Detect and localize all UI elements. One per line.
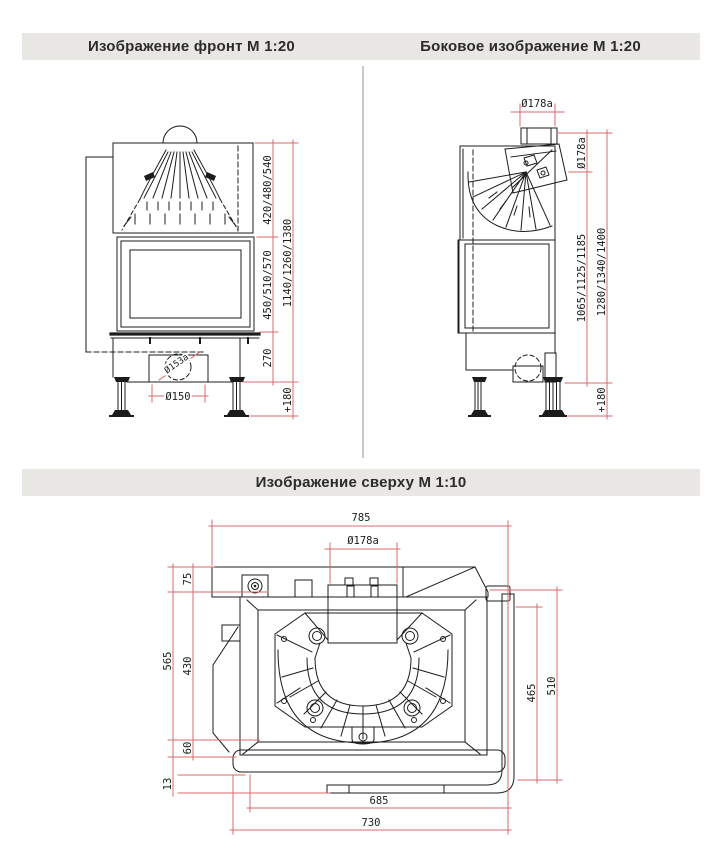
dim-front-glass: 450/510/570 [262, 250, 274, 320]
dim-front-plinth: 270 [262, 349, 274, 368]
dim-side-legs: +180 [596, 387, 608, 412]
dim-top-width: 785 [352, 512, 371, 524]
dim-top-inner-width: 685 [370, 795, 389, 807]
dim-front-legs: +180 [282, 387, 294, 412]
view-headers-bar: Изображение фронт М 1:20 Боковое изображ… [22, 33, 700, 60]
side-view-drawing: Ø178a Ø178a 1065/1125/1185 1280/1340/140… [363, 60, 726, 465]
dim-front-total: 1140/1260/1380 [282, 219, 294, 308]
dim-side-total: 1280/1340/1400 [596, 228, 608, 317]
glass-frame-outer [117, 237, 254, 331]
technical-drawing-page: Изображение фронт М 1:20 Боковое изображ… [0, 0, 726, 864]
dim-top-rear-edge: 60 [182, 742, 194, 755]
top-view-header-bar: Изображение сверху М 1:10 [22, 469, 700, 496]
dim-top-front-edge: 75 [182, 573, 194, 586]
top-view-title: Изображение сверху М 1:10 [22, 474, 700, 491]
side-legs [469, 377, 566, 416]
side-body [458, 128, 567, 416]
glass-pane [130, 250, 241, 318]
dim-top-body-depth: 430 [182, 657, 194, 676]
dim-front-dome: 420/480/540 [262, 155, 274, 225]
wall-bracket [327, 594, 514, 793]
glass-frame [121, 241, 250, 327]
dim-top-base-width: 730 [362, 817, 381, 829]
dim-top-lip: 13 [162, 778, 174, 791]
top-body [212, 567, 514, 793]
dim-top-depth: 565 [162, 652, 174, 671]
dim-side-flue-width: Ø178a [521, 98, 553, 110]
dim-front-air-duct: Ø150 [165, 391, 190, 403]
dim-top-side-inner: 465 [526, 684, 538, 703]
dim-top-side-outer: 510 [546, 677, 558, 696]
side-air-inlet-circle [515, 355, 541, 381]
front-view-drawing: 420/480/540 450/510/570 270 1140/1260/13… [0, 60, 363, 465]
radial-fan [282, 668, 444, 739]
front-dimensions: 420/480/540 450/510/570 270 1140/1260/13… [149, 140, 298, 419]
side-view-title: Боковое изображение М 1:20 [361, 38, 700, 55]
front-view-title: Изображение фронт М 1:20 [22, 38, 361, 55]
top-view-drawing: 785 Ø178a 75 565 430 60 13 465 510 685 7… [0, 500, 726, 864]
flue-box [328, 585, 397, 643]
side-dome-ribs [469, 172, 550, 230]
dim-side-body: 1065/1125/1185 [576, 234, 588, 323]
dim-top-flue: Ø178a [347, 535, 379, 547]
dome-ribs [124, 152, 236, 226]
dim-side-flue-height: Ø178a [576, 137, 588, 169]
